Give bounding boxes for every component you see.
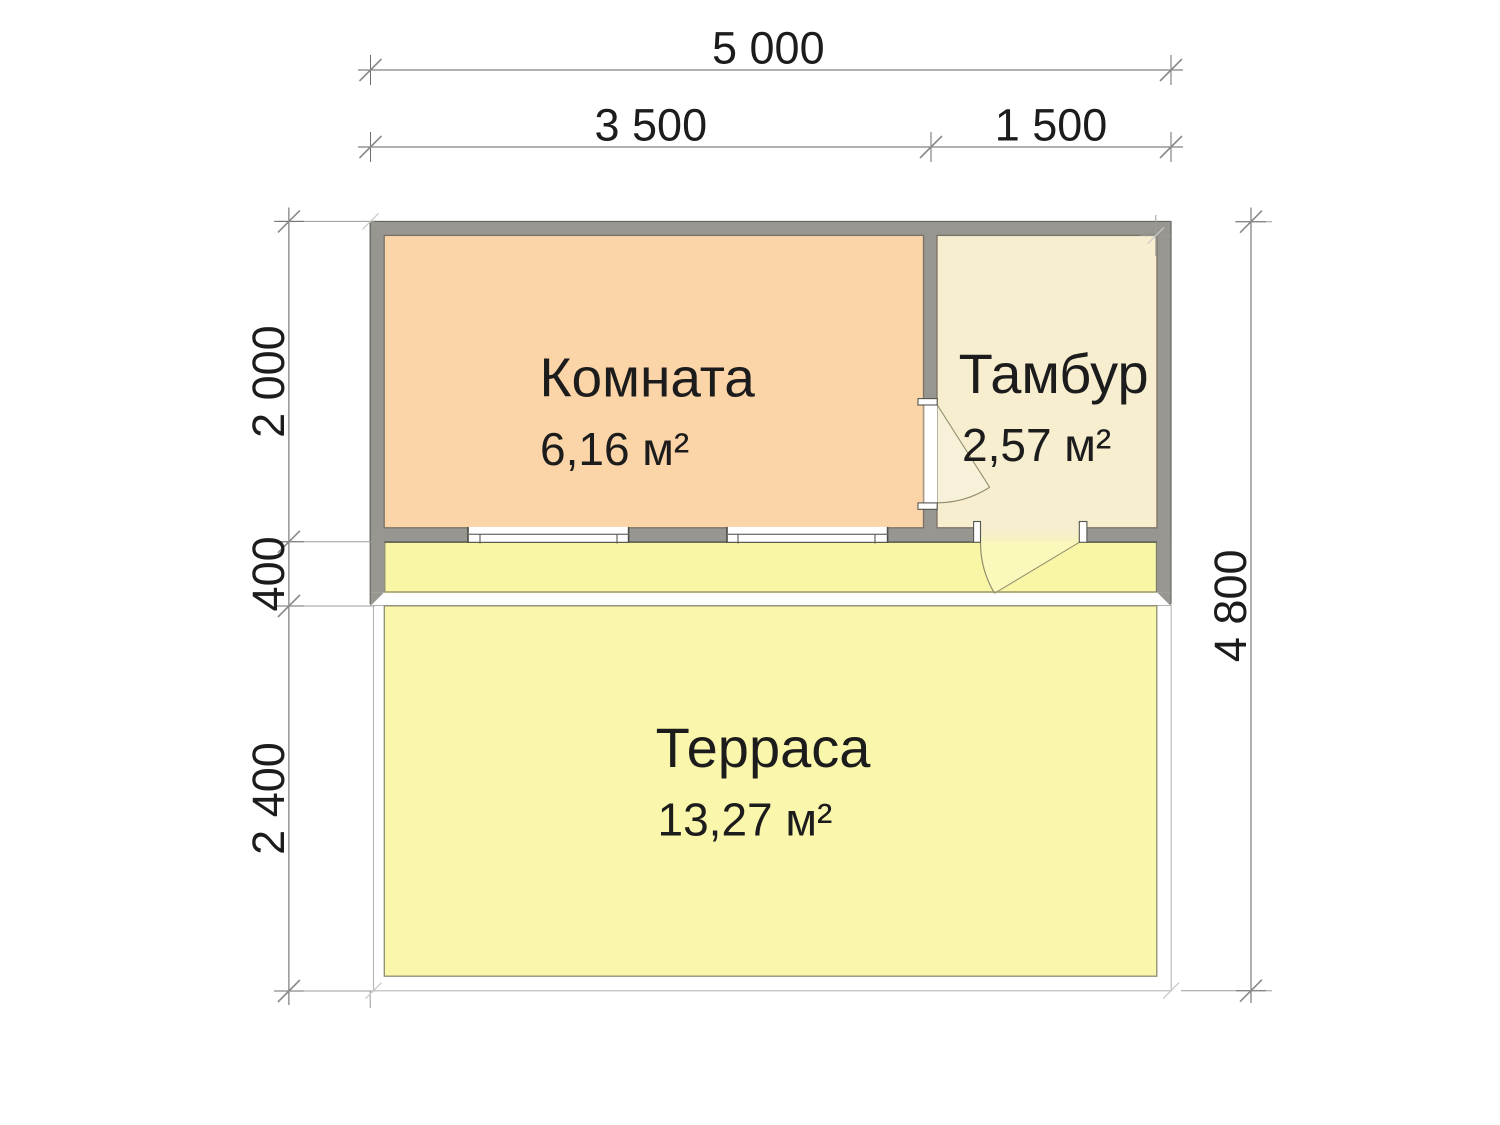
svg-text:1 500: 1 500 — [995, 100, 1108, 151]
svg-text:6,16 м²: 6,16 м² — [540, 423, 689, 475]
svg-text:3 500: 3 500 — [594, 100, 707, 151]
svg-text:2 000: 2 000 — [243, 325, 294, 438]
svg-text:Комната: Комната — [540, 347, 756, 409]
svg-text:4 800: 4 800 — [1205, 549, 1256, 662]
svg-text:400: 400 — [243, 536, 294, 611]
svg-text:Тамбур: Тамбур — [959, 342, 1149, 405]
svg-text:13,27 м²: 13,27 м² — [658, 794, 833, 846]
svg-text:Терраса: Терраса — [656, 716, 872, 779]
svg-text:5 000: 5 000 — [712, 23, 825, 74]
svg-text:2,57 м²: 2,57 м² — [962, 419, 1111, 471]
svg-text:2 400: 2 400 — [243, 742, 294, 855]
